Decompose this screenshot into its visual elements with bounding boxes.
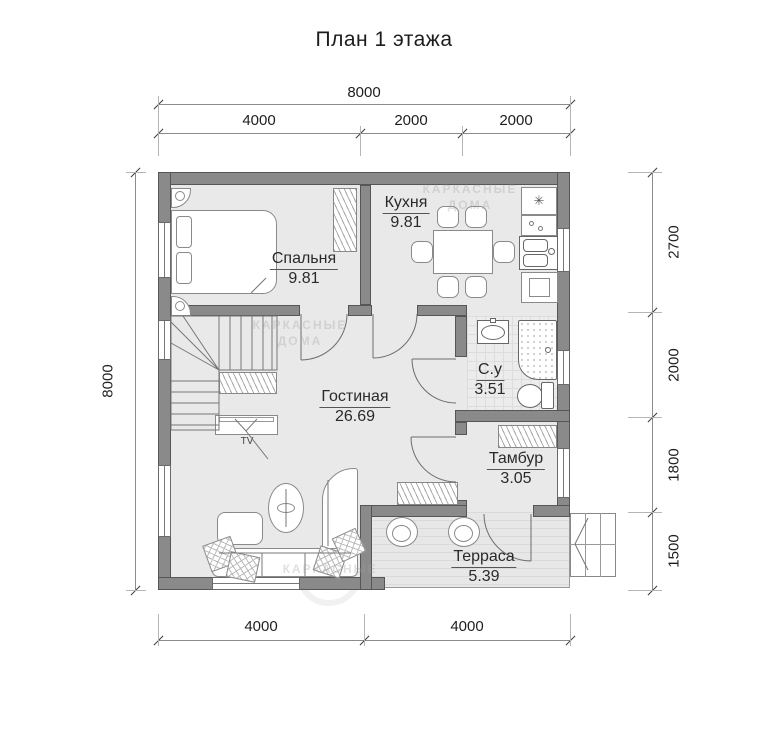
bed-pillow	[176, 216, 192, 248]
room-name: Тамбур	[487, 450, 545, 470]
watermark-line: КАРКАСНЫЕ	[423, 182, 518, 196]
dim-extension	[158, 614, 159, 646]
dim-extension	[126, 590, 146, 591]
room-name: С.у	[476, 361, 504, 381]
stove-burner-icon: ✳	[534, 193, 545, 209]
counter-knob	[529, 221, 534, 226]
decor-table-center	[277, 503, 295, 513]
dim-extension	[628, 172, 662, 173]
wall-bathroom-tambour	[455, 410, 570, 422]
dim-extension	[628, 312, 662, 313]
room-name: Спальня	[270, 250, 338, 270]
dim-extension	[628, 417, 662, 418]
dim-line	[135, 172, 136, 590]
tv-label: TV	[241, 436, 254, 447]
window-bedroom	[158, 222, 171, 278]
tv-screen	[219, 417, 274, 422]
watermark: КАРКАСНЫЕ ДОМА	[253, 318, 348, 349]
dim-extension	[570, 96, 571, 156]
terrace-steps	[570, 513, 616, 577]
watermark-line: ДОМА	[278, 334, 323, 348]
dining-chair	[437, 276, 459, 298]
fridge-inner	[529, 278, 550, 297]
dim-line	[652, 172, 653, 590]
wall-terrace-top-stub	[533, 505, 570, 517]
room-area: 9.81	[288, 270, 319, 288]
sink-faucet	[548, 248, 555, 255]
watermark-line: ДОМА	[448, 198, 493, 212]
room-label-terrace: Терраса 5.39	[451, 548, 516, 587]
armchair-seat	[392, 525, 411, 542]
tambour-closet	[498, 425, 557, 448]
watermark-line: КАРКАСНЫЕ	[253, 318, 348, 332]
room-area: 5.39	[468, 568, 499, 586]
window-living-bottom	[212, 577, 300, 590]
dim-right-seg: 1800	[666, 448, 683, 481]
wall-kitchen-living	[417, 305, 467, 316]
dining-table	[433, 230, 493, 274]
toilet-tank	[541, 382, 554, 409]
hallway-closet	[397, 482, 458, 505]
dim-right-seg: 2700	[666, 225, 683, 258]
dim-bottom-seg: 4000	[244, 618, 277, 635]
bed-pillow	[176, 252, 192, 284]
dim-bottom-seg: 4000	[450, 618, 483, 635]
dim-right-seg: 1500	[666, 534, 683, 567]
dim-extension	[158, 96, 159, 156]
watermark: КАРКАСНЫЕ ДОМА	[423, 182, 518, 213]
dim-top-total: 8000	[347, 84, 380, 101]
dining-chair	[465, 276, 487, 298]
room-area: 3.05	[500, 470, 531, 488]
room-label-tambour: Тамбур 3.05	[487, 450, 545, 489]
dim-line	[158, 104, 570, 105]
wall-divider-base	[348, 305, 372, 316]
dim-extension	[126, 172, 146, 173]
washbasin-bowl	[481, 325, 505, 340]
counter-knob	[538, 226, 543, 231]
room-label-bathroom: С.у 3.51	[474, 361, 505, 400]
dim-line	[158, 133, 570, 134]
dim-left-total: 8000	[100, 364, 117, 397]
step-divider	[570, 544, 616, 545]
room-area: 3.51	[474, 381, 505, 399]
wall-bedroom-kitchen	[360, 185, 371, 305]
room-name: Гостиная	[319, 388, 390, 408]
room-label-bedroom: Спальня 9.81	[270, 250, 338, 289]
dim-top-seg: 4000	[242, 112, 275, 129]
wall-bathroom-left	[455, 316, 467, 357]
window-kitchen	[557, 228, 570, 272]
room-name: Терраса	[451, 548, 516, 568]
floor-plan-canvas: План 1 этажа ✳	[0, 0, 768, 748]
armchair-seat	[454, 525, 473, 542]
sink-basin	[523, 239, 548, 252]
step-divider	[600, 513, 601, 577]
dim-extension	[364, 614, 365, 646]
washbasin-tap	[490, 318, 496, 323]
bedroom-wardrobe	[333, 188, 357, 252]
shower-drain	[545, 347, 551, 353]
room-label-living: Гостиная 26.69	[319, 388, 390, 427]
room-area: 9.81	[390, 214, 421, 232]
watermark-line: КАРКАСНЫЕ	[283, 562, 378, 576]
understair-closet	[219, 372, 277, 394]
window-bathroom	[557, 350, 570, 385]
wall-tambour-left-top	[455, 422, 467, 435]
dim-right-seg: 2000	[666, 348, 683, 381]
room-area: 26.69	[335, 408, 375, 426]
watermark: КАРКАСНЫЕ	[283, 562, 378, 578]
window-tambour	[557, 448, 570, 498]
terrace-armchair	[386, 517, 418, 547]
dim-extension	[360, 126, 361, 156]
dining-chair	[411, 241, 433, 263]
dim-top-seg: 2000	[394, 112, 427, 129]
dim-extension	[628, 512, 662, 513]
bedside-lamp	[175, 191, 185, 201]
bedside-lamp	[175, 301, 185, 311]
window-living-left	[158, 465, 171, 537]
page-title: План 1 этажа	[315, 28, 452, 52]
toilet-bowl	[517, 384, 543, 408]
wall-terrace-top	[360, 505, 467, 517]
dim-extension	[462, 126, 463, 156]
shower-cabin	[518, 320, 557, 380]
dim-extension	[628, 590, 662, 591]
terrace-armchair	[448, 517, 480, 547]
dim-top-seg: 2000	[499, 112, 532, 129]
dining-chair	[493, 241, 515, 263]
dim-extension	[570, 614, 571, 646]
window-stairs	[158, 320, 171, 360]
sink-basin	[523, 254, 548, 267]
step-divider	[585, 513, 586, 577]
